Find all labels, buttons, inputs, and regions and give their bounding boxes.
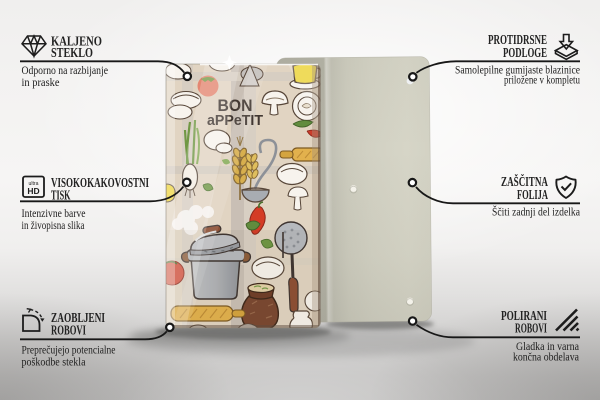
svg-text:ROBOVI: ROBOVI (515, 321, 547, 336)
svg-text:Ščiti zadnji del izdelka: Ščiti zadnji del izdelka (492, 204, 580, 218)
svg-text:poškodbe stekla: poškodbe stekla (22, 357, 86, 369)
svg-text:STEKLO: STEKLO (51, 46, 93, 61)
svg-text:ROBOVI: ROBOVI (51, 324, 86, 339)
svg-text:priložene v kompletu: priložene v kompletu (504, 74, 580, 86)
svg-text:Odporno na razbijanje: Odporno na razbijanje (22, 65, 109, 77)
svg-text:in živopisna slika: in živopisna slika (22, 220, 85, 232)
svg-text:končna obdelava: končna obdelava (513, 352, 579, 364)
svg-text:Intenzivne barve: Intenzivne barve (22, 208, 86, 220)
svg-text:HD: HD (27, 186, 39, 196)
svg-text:FOLIJA: FOLIJA (517, 188, 549, 203)
svg-text:in praske: in praske (22, 77, 60, 89)
svg-text:PODLOGE: PODLOGE (503, 46, 547, 61)
svg-text:TISK: TISK (51, 189, 71, 204)
svg-text:Preprečujejo potencialne: Preprečujejo potencialne (22, 345, 116, 357)
